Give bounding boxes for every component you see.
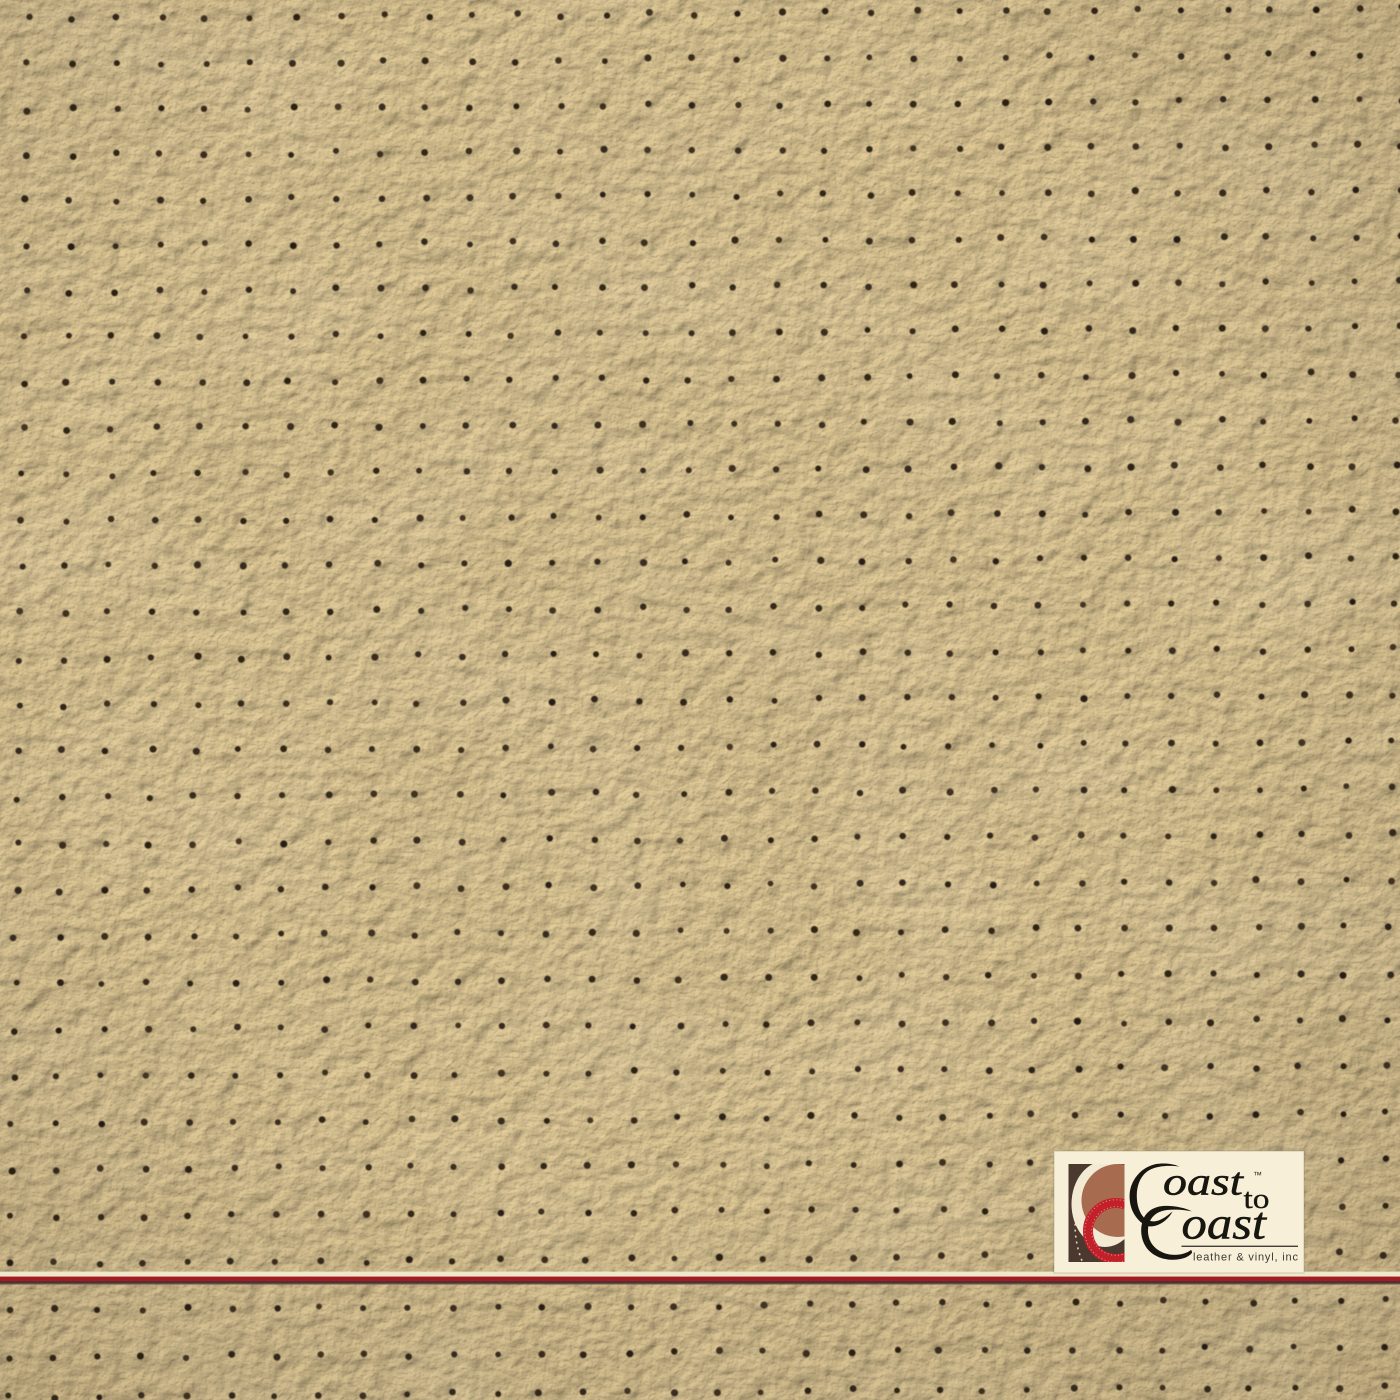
svg-text:™: ™	[1253, 1170, 1262, 1180]
svg-text:oast: oast	[1163, 1161, 1244, 1204]
svg-text:leather & vinyl, inc: leather & vinyl, inc	[1193, 1252, 1299, 1264]
svg-text:oast: oast	[1182, 1199, 1268, 1249]
